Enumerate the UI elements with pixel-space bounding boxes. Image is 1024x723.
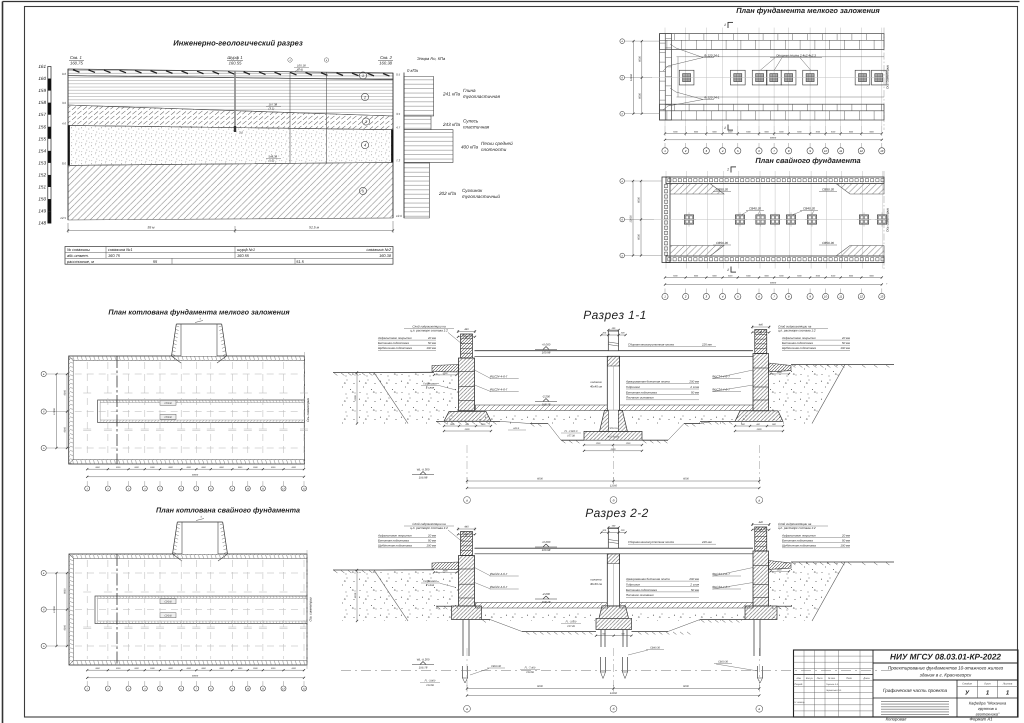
svg-text:440: 440 [464,526,469,529]
svg-text:СВ50.30: СВ50.30 [822,241,834,245]
svg-text:Разрез 2-2: Разрез 2-2 [585,506,648,520]
svg-text:2100: 2100 [354,395,357,402]
svg-text:Н. контр.: Н. контр. [795,701,806,704]
svg-text:200 мм: 200 мм [688,380,699,384]
svg-text:161: 161 [38,64,46,69]
svg-text:157: 157 [38,112,46,117]
svg-text:241 кПа: 241 кПа [442,92,460,97]
svg-text:400 кПа: 400 кПа [461,145,478,150]
svg-text:12000: 12000 [53,408,56,415]
svg-text:СВ50.30: СВ50.30 [716,241,728,245]
svg-text:Бетонная подготовка: Бетонная подготовка [378,341,409,345]
svg-text:Бетонная подготовка: Бетонная подготовка [378,539,409,543]
svg-text:440: 440 [464,328,469,331]
svg-text:скважина №2: скважина №2 [367,247,392,252]
svg-text:ФБС24-4-6-Т: ФБС24-4-6-Т [490,388,509,392]
svg-text:Стадия: Стадия [962,683,972,686]
svg-text:6000: 6000 [639,93,642,99]
svg-text:440: 440 [759,324,764,327]
svg-text:ФБС24-4-6-Т: ФБС24-4-6-Т [490,585,509,589]
svg-text:153: 153 [38,160,46,165]
svg-text:156: 156 [38,124,46,129]
svg-text:60000: 60000 [192,474,199,477]
svg-text:12.0: 12.0 [396,214,402,218]
svg-text:12000: 12000 [610,485,618,488]
svg-text:6000: 6000 [683,478,689,481]
svg-text:Асфальтовое покрытие: Асфальтовое покрытие [781,336,816,340]
svg-text:СВ50.30: СВ50.30 [716,188,728,192]
svg-text:10: 10 [824,149,828,153]
svg-text:7.3: 7.3 [396,158,401,162]
svg-text:20 мм: 20 мм [427,534,436,538]
svg-text:159: 159 [38,88,46,93]
svg-text:160.75: 160.75 [108,253,121,258]
svg-text:(3.1): (3.1) [269,107,275,111]
svg-text:6000: 6000 [64,426,67,432]
svg-text:0.6: 0.6 [62,72,67,76]
svg-text:220 мм: 220 мм [701,343,712,347]
svg-text:Щебёночная подготовка: Щебёночная подготовка [782,544,816,548]
svg-text:60000: 60000 [770,137,777,140]
svg-text:Скв. 1: Скв. 1 [70,55,82,60]
svg-text:12000: 12000 [630,73,633,81]
svg-text:1: 1 [362,74,364,78]
svg-text:6000: 6000 [64,389,67,395]
svg-text:51.5: 51.5 [296,259,304,264]
svg-text:Графическая часть проекта: Графическая часть проекта [883,688,948,693]
svg-text:100 мм: 100 мм [840,346,850,350]
svg-text:№ док.: № док. [828,677,836,680]
svg-text:+0.000: +0.000 [542,540,551,544]
svg-text:плотности: плотности [481,147,507,152]
svg-text:4: 4 [364,143,366,147]
svg-text:6000: 6000 [537,685,543,688]
svg-text:2400: 2400 [756,428,763,431]
svg-text:колонна: колонна [591,578,602,582]
svg-text:200: 200 [601,332,606,335]
svg-text:158.78: 158.78 [542,600,551,604]
svg-text:Глина: Глина [463,88,476,93]
svg-text:Ось симметрии: Ось симметрии [886,208,890,232]
svg-text:ц.п. растворе состава 1:2: ц.п. растворе состава 1:2 [778,526,816,530]
svg-text:Асфальтовое покрытие: Асфальтовое покрытие [377,534,412,538]
svg-text:Ось симметрии: Ось симметрии [306,398,310,422]
svg-text:160.75: 160.75 [70,61,83,66]
svg-text:Подп.: Подп. [846,677,852,680]
svg-text:51.5 м: 51.5 м [309,226,320,230]
svg-text:Бетонная подготовка: Бетонная подготовка [626,588,657,592]
svg-text:6000: 6000 [537,478,543,481]
svg-text:WL -5.200: WL -5.200 [417,657,430,661]
svg-text:Бетонная подготовка: Бетонная подготовка [626,390,657,394]
svg-text:151: 151 [38,185,46,190]
svg-text:160.38: 160.38 [379,253,392,258]
svg-text:СВ50.30: СВ50.30 [822,188,834,192]
svg-text:-2.200: -2.200 [542,592,550,596]
svg-text:Лист: Лист [983,683,992,686]
svg-text:Щебёночная подготовка: Щебёночная подготовка [378,346,412,350]
svg-text:13: 13 [880,295,884,299]
svg-text:100 мм: 100 мм [840,544,850,548]
svg-text:2: 2 [723,23,726,27]
svg-text:6000: 6000 [638,234,641,240]
svg-text:150: 150 [38,197,46,202]
svg-text:200: 200 [620,529,625,532]
svg-text:Лист: Лист [816,677,823,680]
svg-text:СУ0.8: СУ0.8 [165,402,173,405]
svg-text:11: 11 [839,295,842,299]
svg-text:5: 5 [362,189,364,193]
svg-text:160.38: 160.38 [379,61,392,66]
svg-text:155.98: 155.98 [419,476,428,480]
svg-text:ФБС24-4-6-Т: ФБС24-4-6-Т [490,572,509,576]
svg-text:СУ0.8: СУ0.8 [165,601,173,604]
svg-text:55 м: 55 м [147,226,155,230]
svg-text:Изм: Изм [797,677,802,680]
svg-text:50 мм: 50 мм [428,539,436,543]
svg-text:а: а [758,498,760,502]
svg-text:148: 148 [38,221,46,226]
svg-text:План фундамента мелкого заложе: План фундамента мелкого заложения [736,6,880,15]
svg-text:Кафедра "Механика: Кафедра "Механика [969,701,1007,706]
svg-text:(1.2): (1.2) [269,159,275,163]
svg-text:4.7: 4.7 [396,126,401,130]
svg-text:13: 13 [880,149,884,153]
svg-text:Проектирование фундаментов 10-: Проектирование фундаментов 10-этажного ж… [888,666,1004,671]
svg-text:Скв. 2: Скв. 2 [380,55,393,60]
svg-text:200: 200 [620,332,625,335]
svg-text:Разраб.: Разраб. [795,683,804,686]
svg-text:243 кПа: 243 кПа [442,122,460,127]
svg-text:2 Ф12.9-2: 2 Ф12.9-2 [607,427,619,430]
svg-text:шурф №1: шурф №1 [237,247,255,252]
svg-text:План котлована свайного фундам: План котлована свайного фундамента [156,506,300,515]
svg-text:3.5: 3.5 [396,112,401,116]
svg-text:Бетонная подготовка: Бетонная подготовка [782,539,813,543]
svg-text:6000: 6000 [64,588,67,594]
svg-text:FL -2.600-0: FL -2.600-0 [565,430,578,433]
svg-text:СВ40.30: СВ40.30 [803,207,815,211]
svg-text:Песчаное основание: Песчаное основание [626,396,654,400]
svg-text:Ф.120 24-1: Ф.120 24-1 [704,96,720,100]
svg-text:Дата: Дата [862,677,870,680]
svg-text:3: 3 [365,120,367,124]
svg-text:Асфальтовое покрытие: Асфальтовое покрытие [377,336,412,340]
svg-text:Кол.уч: Кол.уч [806,677,814,680]
svg-text:FL -7.400: FL -7.400 [525,667,536,670]
svg-text:12000: 12000 [610,692,618,695]
svg-text:План котлована фундамента мелк: План котлована фундамента мелкого заложе… [108,308,290,317]
svg-text:ФБС24-4-6-Т: ФБС24-4-6-Т [490,375,509,379]
svg-text:202 кПа: 202 кПа [438,191,456,196]
svg-text:Супесь: Супесь [463,119,479,124]
svg-text:2100: 2100 [354,592,357,599]
svg-text:3.0: 3.0 [62,101,67,105]
svg-text:2: 2 [723,126,726,130]
svg-text:Копировал: Копировал [886,717,907,722]
svg-text:СВ40.30: СВ40.30 [749,207,761,211]
svg-text:200: 200 [601,529,606,532]
svg-text:12000: 12000 [53,606,56,613]
svg-text:ц.п. растворе состава 1:2: ц.п. растворе состава 1:2 [410,329,448,333]
svg-text:а: а [466,498,468,502]
svg-text:2 слоя: 2 слоя [425,583,435,587]
svg-text:расстояние, м: расстояние, м [66,259,94,264]
svg-text:12: 12 [860,295,864,299]
svg-text:FL -3.500: FL -3.500 [566,621,577,624]
svg-text:Суглинок: Суглинок [462,188,483,193]
svg-text:СВ40.30: СВ40.30 [650,647,661,650]
svg-text:ц.п. растворе состава 1:2: ц.п. растворе состава 1:2 [410,526,448,530]
svg-text:ц.п. растворе состава 1:2: ц.п. растворе состава 1:2 [778,329,816,333]
svg-text:2 слоя: 2 слоя [689,582,699,586]
svg-text:скважина №1: скважина №1 [108,247,133,252]
svg-text:Ф.120 24-1: Ф.120 24-1 [704,54,720,58]
svg-text:+0.000: +0.000 [542,342,551,346]
svg-text:155: 155 [38,136,46,141]
svg-text:Шурф 1: Шурф 1 [227,55,242,60]
svg-text:200 мм: 200 мм [688,577,699,581]
svg-text:2 Ф12.9-2: 2 Ф12.9-2 [608,625,620,628]
svg-text:0.5: 0.5 [396,73,401,77]
svg-text:50 мм: 50 мм [428,341,436,345]
svg-text:FL -3.800: FL -3.800 [425,680,436,683]
svg-text:Гидроизол: Гидроизол [626,582,640,586]
svg-text:40х40 см: 40х40 см [590,582,602,586]
svg-text:Ф.П 24x24: Ф.П 24x24 [608,435,620,438]
svg-text:Армированная бетонная плита: Армированная бетонная плита [625,380,670,384]
svg-text:НИУ МГСУ 08.03.01-КР-2022: НИУ МГСУ 08.03.01-КР-2022 [890,653,1001,662]
svg-text:6000: 6000 [683,685,689,688]
svg-text:тугопластичный: тугопластичный [462,194,500,199]
svg-text:СВ50.30: СВ50.30 [491,665,502,668]
svg-text:2: 2 [684,295,687,299]
svg-text:Листов: Листов [1002,683,1013,686]
svg-text:а: а [466,707,468,711]
svg-text:160: 160 [38,76,46,81]
svg-text:Черкасова Л.И.: Черкасова Л.И. [826,689,842,692]
svg-text:50 мм: 50 мм [842,341,850,345]
svg-text:б: б [613,707,615,711]
svg-text:160.55: 160.55 [237,253,250,258]
svg-text:Щебёночная подготовка: Щебёночная подготовка [782,346,816,350]
svg-text:Опорная плита 2.4x2.4x2.3: Опорная плита 2.4x2.4x2.3 [776,54,816,58]
svg-text:220 мм: 220 мм [701,540,712,544]
svg-text:СУ0.8: СУ0.8 [165,615,173,618]
svg-text:160.55: 160.55 [229,61,242,66]
svg-text:153.58: 153.58 [426,684,434,687]
svg-text:пластичная: пластичная [463,125,490,130]
svg-text:20 мм: 20 мм [841,336,850,340]
svg-text:Инженерно-геологический разрез: Инженерно-геологический разрез [173,39,303,48]
svg-text:здания в г. Красногорск: здания в г. Красногорск [919,673,972,678]
svg-text:Горохов А.А.: Горохов А.А. [826,683,839,686]
svg-text:12.5: 12.5 [60,216,66,220]
svg-text:Гидроизол: Гидроизол [626,385,640,389]
svg-text:Асфальтовое покрытие: Асфальтовое покрытие [781,534,816,538]
svg-text:Бетонная подготовка: Бетонная подготовка [782,341,813,345]
svg-text:160.98: 160.98 [542,548,551,552]
svg-text:160.98: 160.98 [542,351,551,355]
svg-text:149: 149 [38,209,46,214]
svg-text:Сборная многопустотная плита: Сборная многопустотная плита [628,343,674,347]
svg-text:0 кПа: 0 кПа [407,68,419,73]
svg-text:2: 2 [726,268,729,272]
svg-text:4.6: 4.6 [62,121,67,125]
svg-text:колонна: колонна [591,380,602,384]
svg-text:№ скважины: № скважины [67,247,90,252]
svg-text:2: 2 [363,95,366,99]
svg-text:Разрез 1-1: Разрез 1-1 [583,308,646,322]
svg-text:2400: 2400 [464,428,471,431]
svg-text:-2.200: -2.200 [542,394,550,398]
svg-text:8.0: 8.0 [62,161,67,165]
svg-text:50 мм: 50 мм [691,390,699,394]
svg-text:440: 440 [759,521,764,524]
svg-text:20 мм: 20 мм [427,336,436,340]
svg-text:50 мм: 50 мм [691,588,699,592]
svg-text:11: 11 [839,149,842,153]
svg-text:60000: 60000 [192,675,199,678]
svg-text:Щебёночная подготовка: Щебёночная подготовка [378,544,412,548]
svg-text:100 мм: 100 мм [426,544,436,548]
svg-text:СВ50.30: СВ50.30 [718,661,729,664]
svg-text:WL -5.300: WL -5.300 [417,467,430,471]
svg-text:152: 152 [38,172,46,177]
svg-text:2400: 2400 [610,448,617,451]
svg-text:10: 10 [824,295,828,299]
svg-text:План свайного фундамента: План свайного фундамента [755,156,860,165]
svg-text:Песчаное основание: Песчаное основание [626,593,654,597]
svg-text:-600-0: -600-0 [513,427,520,430]
svg-text:100 мм: 100 мм [426,346,436,350]
svg-text:2: 2 [726,168,729,172]
svg-text:12000: 12000 [630,215,633,223]
svg-text:грунтов и: грунтов и [978,706,998,711]
svg-text:50 мм: 50 мм [842,539,850,543]
svg-text:2 слоя: 2 слоя [425,386,435,390]
svg-text:3.0: 3.0 [239,131,243,135]
svg-text:154: 154 [38,148,46,153]
svg-text:Формат А1: Формат А1 [970,717,993,722]
svg-text:153.58: 153.58 [526,671,534,674]
svg-text:158: 158 [38,100,46,105]
svg-text:Пески средней: Пески средней [481,141,513,146]
svg-text:ФБС24-4-6-Т: ФБС24-4-6-Т [712,585,731,589]
svg-text:157.38: 157.38 [567,435,575,438]
svg-text:Эпюра Rо, КПа: Эпюра Rо, КПа [417,56,446,61]
svg-text:2: 2 [684,149,687,153]
svg-text:155.78: 155.78 [419,666,428,670]
svg-text:12: 12 [860,149,864,153]
svg-text:тугопластичная: тугопластичная [463,94,501,99]
svg-text:157.48: 157.48 [567,625,575,628]
svg-text:2 слоя: 2 слоя [689,385,699,389]
svg-text:абс.отмет.: абс.отмет. [67,253,89,258]
svg-text:Сборная многопустотная плита: Сборная многопустотная плита [628,540,674,544]
svg-text:ФБС24-4-6-Т: ФБС24-4-6-Т [712,388,731,392]
svg-text:Армированная бетонная плита: Армированная бетонная плита [625,577,670,581]
svg-text:СУ0.8: СУ0.8 [165,416,173,419]
svg-text:60000: 60000 [770,281,777,284]
svg-text:20 мм: 20 мм [841,534,850,538]
svg-text:6000: 6000 [639,56,642,62]
svg-text:6000: 6000 [638,197,641,203]
svg-text:Ось симметрии: Ось симметрии [309,597,313,621]
svg-text:б: б [613,498,615,502]
svg-text:40х40 см: 40х40 см [590,385,602,389]
svg-text:158.78: 158.78 [542,403,551,407]
svg-text:6000: 6000 [64,624,67,630]
svg-text:а: а [758,707,760,711]
